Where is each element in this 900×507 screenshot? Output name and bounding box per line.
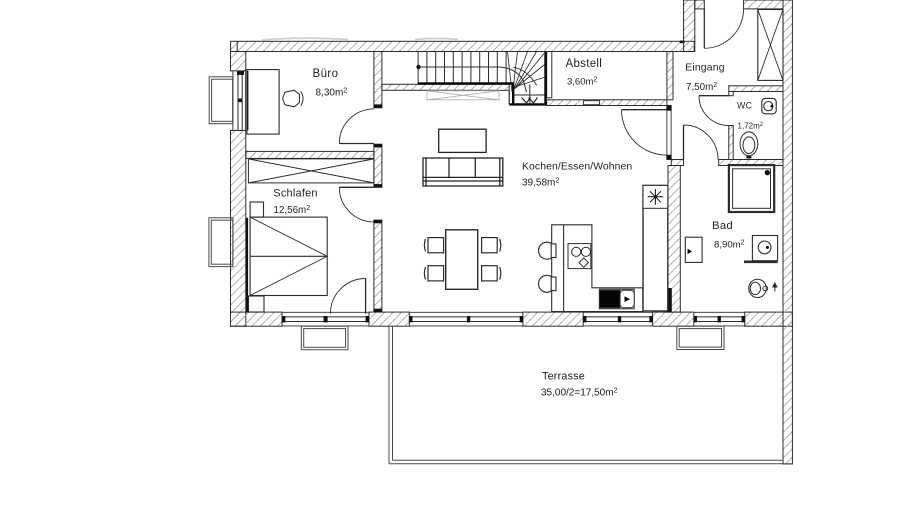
svg-text:Abstell: Abstell [566,58,603,70]
svg-text:Schlafen: Schlafen [273,188,317,200]
svg-text:12,56m2: 12,56m2 [274,205,311,216]
svg-text:Kochen/Essen/Wohnen: Kochen/Essen/Wohnen [522,162,632,173]
svg-text:3,60m2: 3,60m2 [567,76,597,87]
svg-text:39,58m2: 39,58m2 [522,175,559,188]
svg-text:7,50m2: 7,50m2 [686,82,717,93]
svg-text:8,90m2: 8,90m2 [714,239,745,250]
svg-text:Bad: Bad [712,220,733,232]
svg-text:Terrasse: Terrasse [542,371,585,383]
svg-text:WC: WC [737,101,753,111]
svg-text:8,30m2: 8,30m2 [316,85,348,98]
svg-text:35,00/2=17,50m2: 35,00/2=17,50m2 [541,388,618,399]
svg-text:Eingang: Eingang [685,63,725,74]
svg-text:Büro: Büro [313,68,339,80]
